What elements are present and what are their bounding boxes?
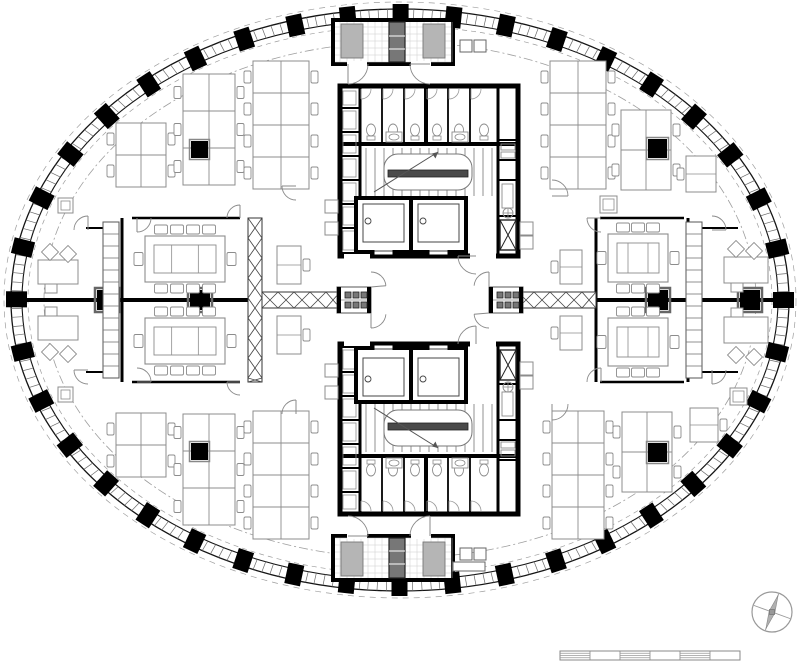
chair <box>244 71 251 83</box>
door-arc <box>371 272 386 286</box>
shaft-block <box>389 538 405 578</box>
chair <box>613 466 620 478</box>
chair <box>171 307 184 316</box>
guest-chair <box>42 344 59 361</box>
chair <box>227 335 236 348</box>
facade-column <box>496 14 516 38</box>
facade-column <box>495 563 515 587</box>
toilet-icon <box>411 124 420 136</box>
chair <box>541 103 548 115</box>
planter <box>58 387 73 402</box>
chair <box>203 284 216 293</box>
guest-chair <box>60 346 77 363</box>
facade-column <box>57 141 83 167</box>
chair <box>174 501 181 513</box>
turnstile-gate <box>489 287 523 313</box>
storage-cabinet <box>520 362 533 375</box>
chair <box>617 307 630 316</box>
chair <box>107 133 114 145</box>
chair <box>244 453 251 465</box>
guest-chair <box>42 244 59 261</box>
floor-plan-drawing <box>0 0 800 668</box>
door-swing <box>371 272 386 287</box>
chair <box>541 135 548 147</box>
door-arc <box>74 370 88 384</box>
facade-column <box>639 502 664 528</box>
chair <box>303 329 310 341</box>
facade-column <box>29 186 55 210</box>
chair <box>237 501 244 513</box>
door-swing <box>474 272 489 287</box>
chair <box>155 307 168 316</box>
elevator <box>356 346 411 403</box>
elevator <box>356 198 411 255</box>
chair <box>187 307 200 316</box>
chair <box>311 485 318 497</box>
chair <box>606 453 613 465</box>
facade-column <box>93 470 119 496</box>
chair <box>647 368 660 377</box>
chair <box>647 223 660 232</box>
facade-column <box>680 471 706 497</box>
desk-bench <box>174 414 244 525</box>
guest-chair <box>746 349 763 366</box>
chair <box>606 421 613 433</box>
sink-counter <box>386 132 402 142</box>
x-brace-beam <box>262 292 340 308</box>
storage-cabinet <box>325 200 338 213</box>
interior-column <box>191 443 208 460</box>
chair <box>608 103 615 115</box>
chair <box>632 223 645 232</box>
single-desk <box>277 316 310 354</box>
chair <box>617 368 630 377</box>
facade-column <box>746 187 772 211</box>
facade-column <box>765 342 789 363</box>
door-arc <box>137 218 151 232</box>
sink-counter <box>452 132 468 142</box>
counter-block <box>423 24 445 58</box>
door-arc <box>371 314 386 328</box>
door-arc <box>74 216 88 230</box>
toilet-icon <box>433 124 442 136</box>
chair <box>311 135 318 147</box>
chair <box>311 167 318 179</box>
facade-column <box>285 13 305 37</box>
chair <box>134 335 143 348</box>
locker <box>460 548 472 560</box>
facade-column <box>717 142 743 168</box>
counter-block <box>423 542 445 576</box>
conference-table <box>597 307 679 377</box>
facade-column <box>11 341 35 362</box>
door-swing <box>227 205 240 218</box>
axis-column <box>740 290 760 310</box>
chair <box>606 517 613 529</box>
core-south <box>340 341 518 515</box>
locker <box>474 40 486 52</box>
chair <box>541 71 548 83</box>
scale-bar <box>560 651 740 660</box>
facade-column <box>135 502 160 528</box>
floor-plan-page <box>0 0 800 668</box>
chair <box>606 485 613 497</box>
conference-table <box>134 307 236 375</box>
chair <box>203 366 216 375</box>
core-north <box>340 86 518 260</box>
chair <box>187 284 200 293</box>
chair <box>670 252 679 265</box>
chair <box>171 225 184 234</box>
door-swing <box>371 313 386 328</box>
chair <box>311 71 318 83</box>
counter-block <box>341 542 363 576</box>
desk-bench <box>541 61 615 189</box>
storage-cabinet <box>520 236 533 249</box>
chair <box>551 327 558 339</box>
chair <box>244 167 251 179</box>
door-swing <box>587 218 601 232</box>
chair <box>613 426 620 438</box>
planter <box>600 196 617 213</box>
door-swing <box>137 368 151 382</box>
chair <box>543 421 550 433</box>
chair <box>174 124 181 136</box>
chair <box>311 517 318 529</box>
interior-column <box>648 443 667 462</box>
door-swing <box>74 370 88 384</box>
chair <box>174 161 181 173</box>
elevator <box>411 346 466 403</box>
low-cabinet <box>453 562 485 571</box>
facade-column <box>284 562 304 586</box>
conference-table <box>597 223 679 293</box>
chair <box>187 366 200 375</box>
chair <box>608 135 615 147</box>
chair <box>543 453 550 465</box>
chair <box>608 71 615 83</box>
door-swing <box>227 382 240 395</box>
storage-cabinet <box>325 222 338 235</box>
guest-chair <box>728 241 745 258</box>
chair <box>237 87 244 99</box>
facade-column <box>28 389 54 413</box>
desk-bench <box>244 61 318 189</box>
mullion-partition <box>686 222 702 378</box>
chair <box>632 307 645 316</box>
chair <box>237 427 244 439</box>
toilet-icon <box>411 464 420 476</box>
chair <box>612 124 619 136</box>
desk-bench <box>174 74 244 185</box>
x-brace-wall <box>248 218 262 382</box>
chair <box>244 103 251 115</box>
desk-cluster <box>107 413 175 477</box>
chair <box>303 259 310 271</box>
toilet-icon <box>480 464 489 476</box>
door-swing <box>137 218 151 232</box>
sink-counter <box>452 458 468 468</box>
service-cores <box>333 20 523 580</box>
chair <box>227 253 236 266</box>
chair <box>174 87 181 99</box>
storage-cabinet <box>325 364 338 377</box>
facade-column <box>745 390 771 414</box>
sink-counter <box>386 458 402 468</box>
planter <box>58 198 73 213</box>
chair <box>155 225 168 234</box>
chair <box>244 485 251 497</box>
chair <box>171 284 184 293</box>
chair <box>174 427 181 439</box>
shaft-block <box>389 22 405 62</box>
chair <box>677 168 684 180</box>
storage-cabinet <box>520 222 533 235</box>
chair <box>597 252 606 265</box>
facade-column <box>765 238 789 259</box>
chair <box>612 164 619 176</box>
single-desk <box>690 408 727 442</box>
door-swing <box>74 216 88 230</box>
chair <box>670 336 679 349</box>
mullion-partition <box>103 222 119 378</box>
interior-column <box>648 139 667 158</box>
chair <box>134 253 143 266</box>
north-arrow-icon <box>752 592 792 632</box>
chair <box>311 421 318 433</box>
executive-desk <box>724 241 768 292</box>
chair <box>237 161 244 173</box>
door-swing <box>587 368 601 382</box>
toilet-icon <box>433 464 442 476</box>
conference-table <box>134 225 236 293</box>
chair <box>674 466 681 478</box>
x-brace-beam <box>518 292 596 308</box>
chair <box>244 517 251 529</box>
facade-column <box>717 433 743 459</box>
locker <box>474 548 486 560</box>
desk-bench <box>244 411 318 539</box>
chair <box>647 307 660 316</box>
toilet-icon <box>367 124 376 136</box>
chair <box>187 225 200 234</box>
single-desk <box>551 250 582 284</box>
chair <box>543 485 550 497</box>
door-swing <box>474 313 489 328</box>
chair <box>237 124 244 136</box>
chair <box>155 284 168 293</box>
chair <box>543 517 550 529</box>
door-arc <box>474 272 489 286</box>
door-arc <box>227 382 240 395</box>
chair <box>203 307 216 316</box>
facade-column <box>681 104 707 130</box>
chair <box>541 167 548 179</box>
executive-desk <box>38 307 78 362</box>
chair <box>597 336 606 349</box>
executive-desk <box>38 244 78 293</box>
chair <box>617 223 630 232</box>
chair <box>237 464 244 476</box>
storage-cabinet <box>325 386 338 399</box>
chair <box>174 464 181 476</box>
planter <box>730 388 747 405</box>
elevator <box>411 198 466 255</box>
single-desk <box>677 156 716 192</box>
chair <box>244 135 251 147</box>
chair <box>203 225 216 234</box>
door-arc <box>227 205 240 218</box>
chair <box>171 366 184 375</box>
door-arc <box>587 218 601 232</box>
desk-bench <box>543 411 613 539</box>
chair <box>720 419 727 431</box>
toilet-icon <box>367 464 376 476</box>
facade-column <box>57 432 83 458</box>
chair <box>647 284 660 293</box>
interior-column <box>191 141 208 158</box>
annotations <box>560 592 792 660</box>
toilet-icon <box>480 124 489 136</box>
door-arc <box>587 368 601 382</box>
storage-cabinet <box>520 376 533 389</box>
facade-column <box>11 237 35 258</box>
chair <box>674 426 681 438</box>
door-arc <box>474 314 489 328</box>
counter-block <box>341 24 363 58</box>
chair <box>107 165 114 177</box>
single-desk <box>277 246 310 284</box>
chair <box>244 421 251 433</box>
guest-chair <box>728 347 745 364</box>
turnstile-gate <box>337 287 371 313</box>
chair <box>311 103 318 115</box>
door-arc <box>137 368 151 382</box>
chair <box>673 124 680 136</box>
desk-cluster <box>107 123 175 187</box>
chair <box>107 423 114 435</box>
chair <box>617 284 630 293</box>
chair <box>632 284 645 293</box>
chair <box>551 261 558 273</box>
service-room <box>333 533 453 580</box>
service-room <box>333 20 453 67</box>
chair <box>311 453 318 465</box>
executive-desk <box>724 308 768 365</box>
locker <box>460 40 472 52</box>
chair <box>155 366 168 375</box>
chair <box>632 368 645 377</box>
chair <box>107 455 114 467</box>
single-desk <box>551 316 582 350</box>
